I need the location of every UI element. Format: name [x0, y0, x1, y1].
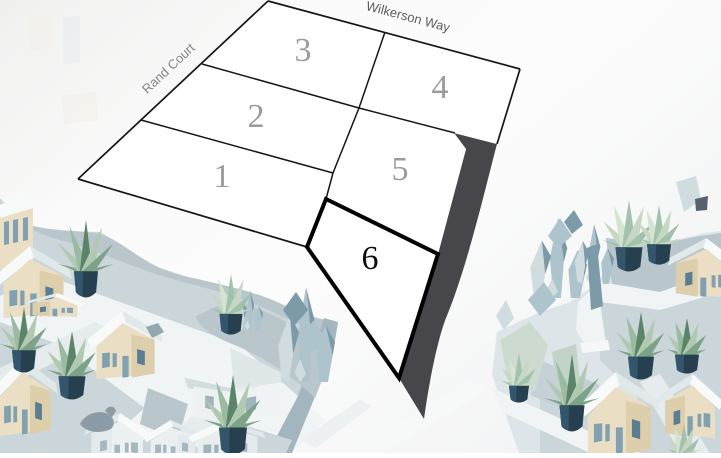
svg-text:6: 6 — [362, 240, 379, 277]
svg-text:5: 5 — [392, 151, 409, 188]
svg-text:1: 1 — [214, 158, 231, 195]
svg-text:2: 2 — [248, 98, 265, 135]
svg-text:4: 4 — [432, 69, 449, 106]
svg-text:3: 3 — [295, 32, 312, 69]
